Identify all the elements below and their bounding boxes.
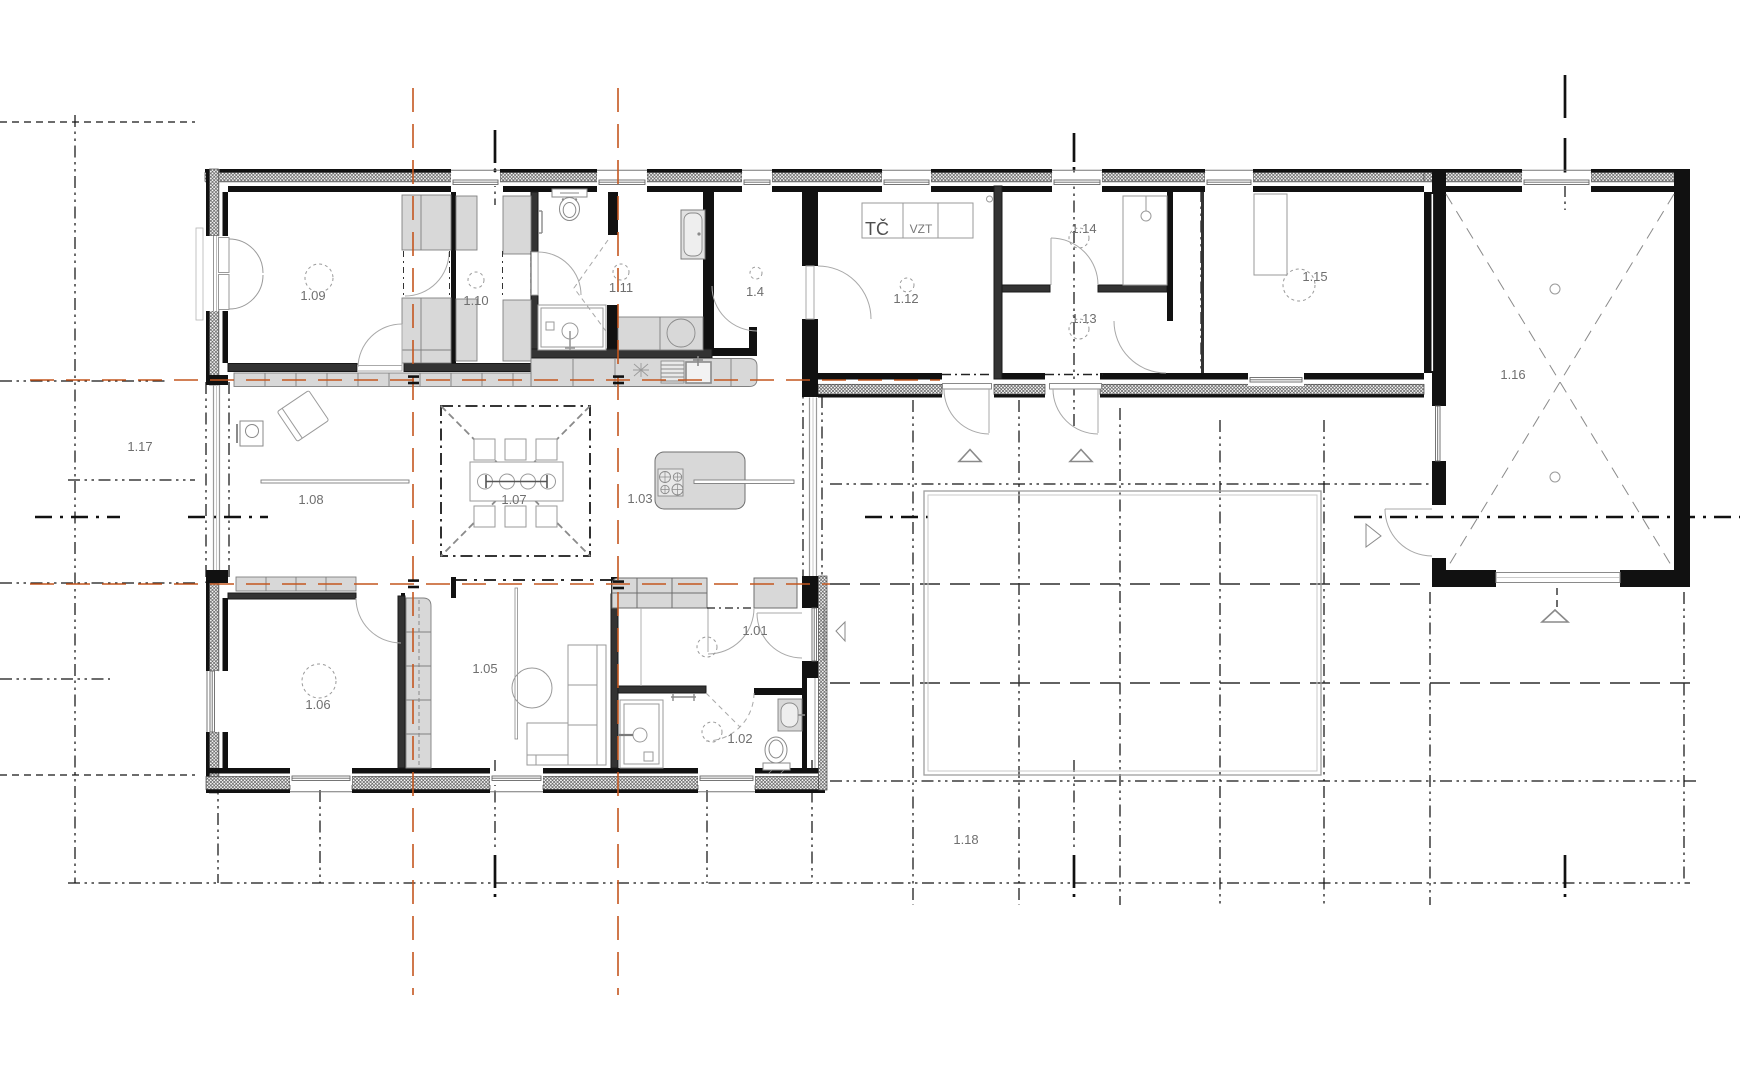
svg-text:1.07: 1.07 — [501, 492, 526, 507]
svg-text:1.06: 1.06 — [305, 697, 330, 712]
svg-text:VZT: VZT — [910, 222, 933, 236]
svg-text:1.12: 1.12 — [893, 291, 918, 306]
svg-text:1.05: 1.05 — [472, 661, 497, 676]
svg-text:1.03: 1.03 — [627, 491, 652, 506]
svg-text:1.02: 1.02 — [727, 731, 752, 746]
svg-text:1.09: 1.09 — [300, 288, 325, 303]
svg-text:1.17: 1.17 — [127, 439, 152, 454]
svg-text:1.18: 1.18 — [953, 832, 978, 847]
svg-text:1.01: 1.01 — [742, 623, 767, 638]
svg-text:1.13: 1.13 — [1071, 311, 1096, 326]
svg-text:1.16: 1.16 — [1500, 367, 1525, 382]
svg-text:1.08: 1.08 — [298, 492, 323, 507]
svg-text:1.10: 1.10 — [463, 293, 488, 308]
svg-text:TČ: TČ — [865, 218, 889, 239]
svg-text:1.4: 1.4 — [746, 284, 764, 299]
svg-text:1.11: 1.11 — [609, 280, 633, 295]
